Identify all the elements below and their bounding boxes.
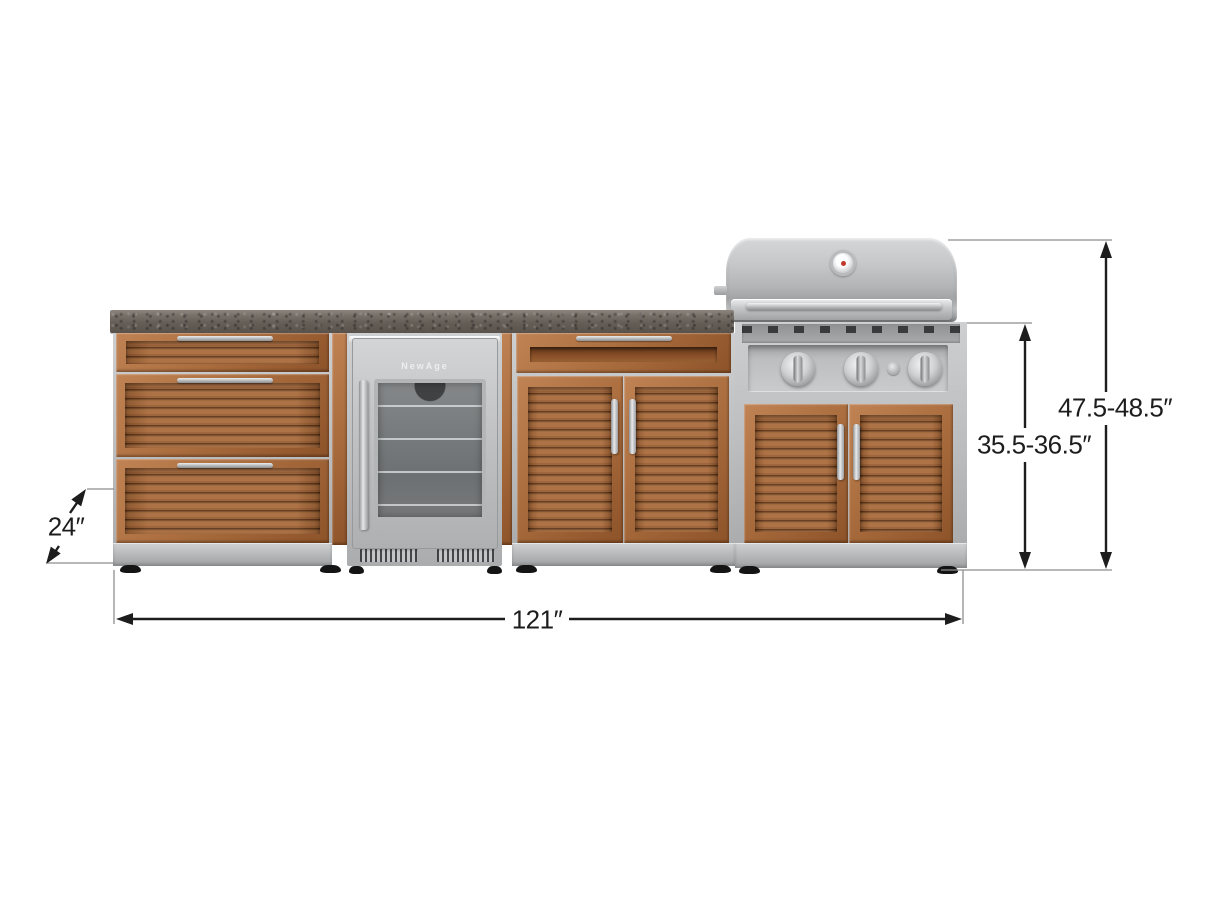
arrow-right-icon [945,613,962,625]
door-handle [837,424,844,480]
leveling-foot [320,565,341,573]
fridge-door: NewAge [352,338,498,549]
fridge-handle [359,380,368,530]
leveling-foot [487,566,502,574]
cabinet-door-left [517,376,623,543]
arrow-down-icon [1019,552,1031,569]
burner-knob [908,352,942,386]
arrow-up-icon [1019,324,1031,341]
thermometer-gauge-icon [830,250,856,276]
arrow-up-icon [1100,241,1112,258]
counter-height-dimension-label: 35.5-36.5″ [977,430,1091,461]
drawer-groove [530,347,717,362]
false-drawer-front [516,333,731,373]
cabinet-base [735,543,967,568]
countertop [110,310,734,333]
depth-dimension-label: 24″ [48,512,85,543]
fridge-brand-logo: NewAge [401,361,449,371]
drawer-handle [177,463,273,468]
arrow-down-left-icon [41,547,61,568]
two-door-cabinet [512,333,735,545]
drawer-handle [177,378,273,383]
arrow-up-right-icon [71,486,91,507]
arrow-left-icon [116,613,133,625]
burner-knob [781,352,815,386]
cabinet-base [512,543,735,566]
grill-door-right [849,404,953,543]
cabinet-door-right [624,376,729,543]
fridge-vent-grille [437,549,495,562]
arrow-down-icon [1100,552,1112,569]
leveling-foot [710,565,731,573]
door-handle [629,399,636,454]
drawer-top [116,333,329,372]
outdoor-fridge: NewAge [347,333,502,566]
fridge-side-panel [332,333,347,545]
leveling-foot [937,566,958,574]
drawer-handle [177,336,273,341]
leveling-foot [349,566,364,574]
overall-height-dimension-label: 47.5-48.5″ [1058,393,1172,424]
drawer-middle [116,374,329,457]
depth-dimension-line [51,546,59,558]
grill-door-left [744,404,848,543]
hood-hinge [714,286,727,295]
drawer-bottom [116,459,329,543]
leveling-foot [516,565,537,573]
grill-cabinet [735,322,967,543]
grill-control-panel [748,345,948,392]
grill-firebox [742,324,960,343]
grill-hood-handle [746,303,942,310]
igniter-button [887,362,900,375]
drawer-handle [576,336,672,341]
leveling-foot [739,566,760,574]
leveling-foot [120,565,141,573]
door-handle [853,424,860,480]
cabinet-base [113,543,332,566]
width-dimension-label: 121″ [512,605,563,636]
three-drawer-cabinet [113,333,332,545]
product-dimension-diagram: { "diagram": { "type": "product dimensio… [0,0,1214,911]
door-handle [611,399,618,454]
burner-knob [844,352,878,386]
fridge-glass-window [374,379,486,521]
fridge-vent-grille [360,549,418,562]
